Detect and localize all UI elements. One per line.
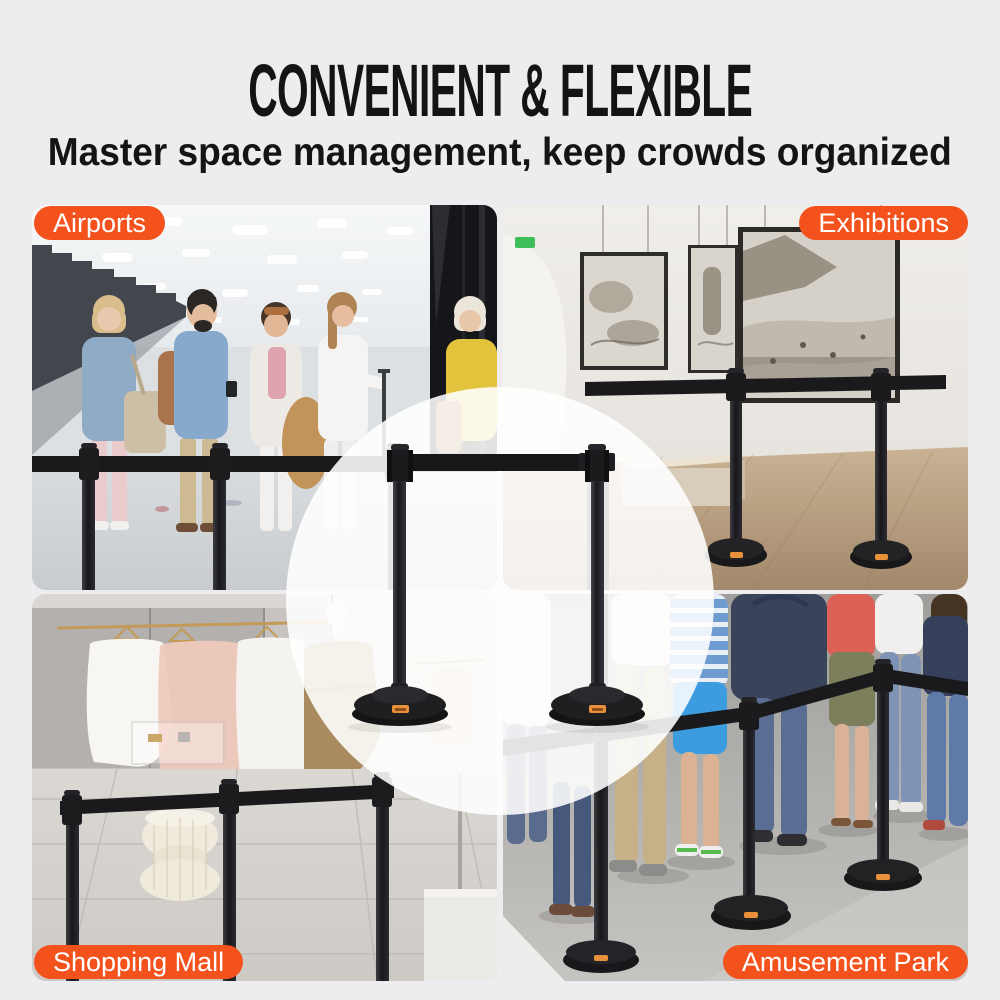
exit-sign xyxy=(515,237,535,248)
scene-label-exhibitions: Exhibitions xyxy=(799,206,968,240)
painting-left xyxy=(580,252,668,370)
page-subtitle-row: Master space management, keep crowds org… xyxy=(0,133,1000,172)
scene-label-amusement-park: Amusement Park xyxy=(723,945,968,979)
page-title-row: CONVENIENT & FLEXIBLE xyxy=(0,54,1000,128)
page-subtitle: Master space management, keep crowds org… xyxy=(48,133,952,172)
base-logo-chip xyxy=(875,554,888,560)
belt-clip xyxy=(579,453,586,471)
retractable-belt xyxy=(399,454,597,471)
base-logo-chip xyxy=(730,552,743,558)
painting-middle xyxy=(688,245,738,373)
base-logo-chip xyxy=(876,874,890,880)
stanchion-left xyxy=(352,444,448,726)
page-title: CONVENIENT & FLEXIBLE xyxy=(248,54,752,128)
stanchion-right xyxy=(549,444,645,726)
belt-clip xyxy=(608,453,615,471)
scene-label-airports: Airports xyxy=(34,206,165,240)
stanchion-post xyxy=(393,481,406,689)
glass-display-table xyxy=(132,722,224,764)
stanchion-post xyxy=(591,481,604,689)
base-logo-chip xyxy=(744,912,758,918)
base-logo-chip xyxy=(594,955,608,961)
scene-label-shopping-mall: Shopping Mall xyxy=(34,945,243,979)
marketing-banner: CONVENIENT & FLEXIBLE Master space manag… xyxy=(0,0,1000,1000)
queue-woman-far-right xyxy=(923,594,968,830)
stanchion-product-closeup xyxy=(286,387,714,815)
